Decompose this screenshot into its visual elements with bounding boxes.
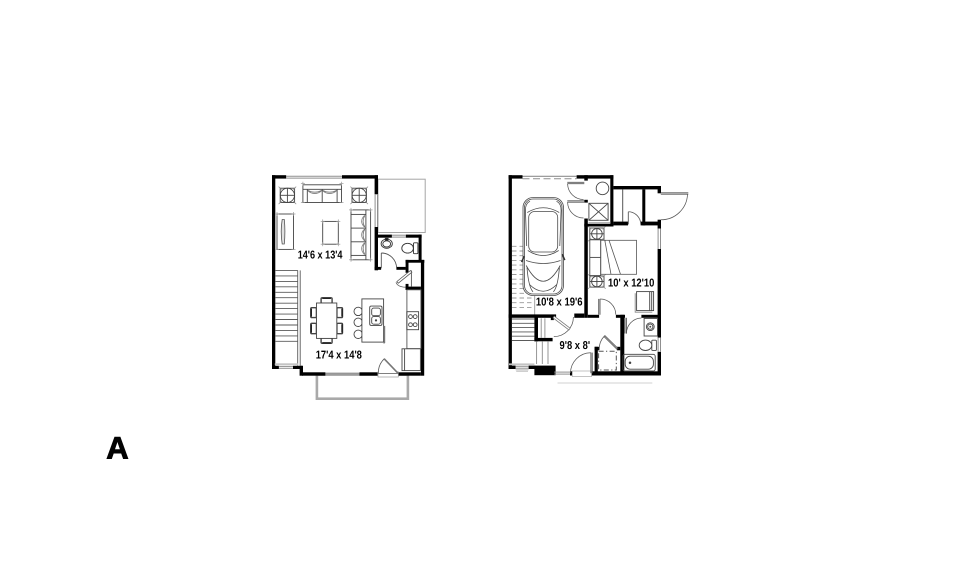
svg-text:9'8 x 8': 9'8 x 8' [560, 340, 591, 352]
svg-text:10' x 12'10: 10' x 12'10 [608, 277, 654, 289]
svg-text:14'6 x 13'4: 14'6 x 13'4 [298, 249, 343, 261]
svg-text:17'4 x 14'8: 17'4 x 14'8 [316, 350, 362, 362]
svg-text:10'8 x 19'6: 10'8 x 19'6 [536, 297, 583, 309]
svg-text:A: A [106, 431, 128, 466]
